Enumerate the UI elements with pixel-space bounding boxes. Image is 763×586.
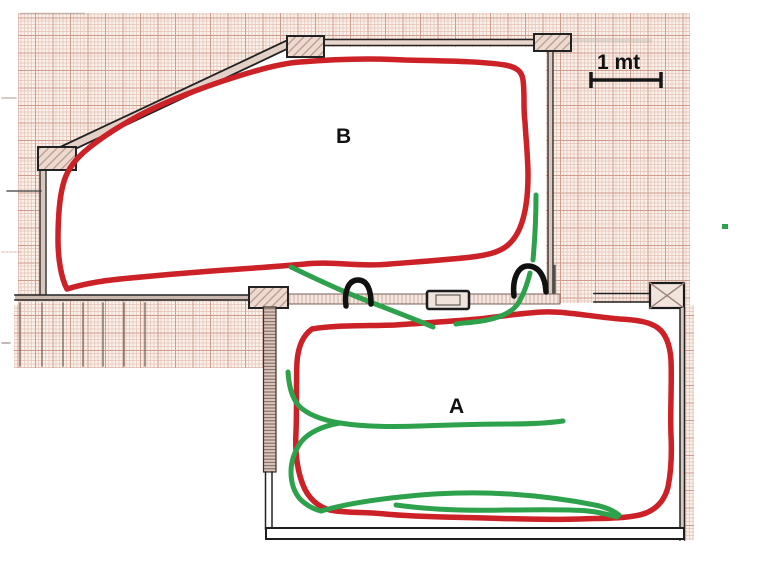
pillar-top-right xyxy=(534,34,571,51)
room-a-right-wall xyxy=(680,308,685,540)
room-b-right-wall xyxy=(548,51,555,295)
green-door-path-upper xyxy=(533,195,536,260)
pillar-top-mid xyxy=(287,36,324,57)
green-marker-dot xyxy=(722,224,728,229)
room-a-bottom-wall xyxy=(266,528,684,539)
floor-plan-canvas: B A 1 mt xyxy=(0,0,763,586)
room-b-left-wall xyxy=(40,170,46,297)
room-b-bottom-wall xyxy=(15,295,250,300)
room-label-b: B xyxy=(336,125,351,148)
room-label-a: A xyxy=(449,395,464,418)
scale-bar-label: 1 mt xyxy=(597,51,640,74)
pillar-mid-left xyxy=(249,287,288,308)
wall-element-box xyxy=(427,291,469,309)
floor-plan-page: B A 1 mt xyxy=(0,0,763,586)
pillar-right xyxy=(650,283,684,308)
